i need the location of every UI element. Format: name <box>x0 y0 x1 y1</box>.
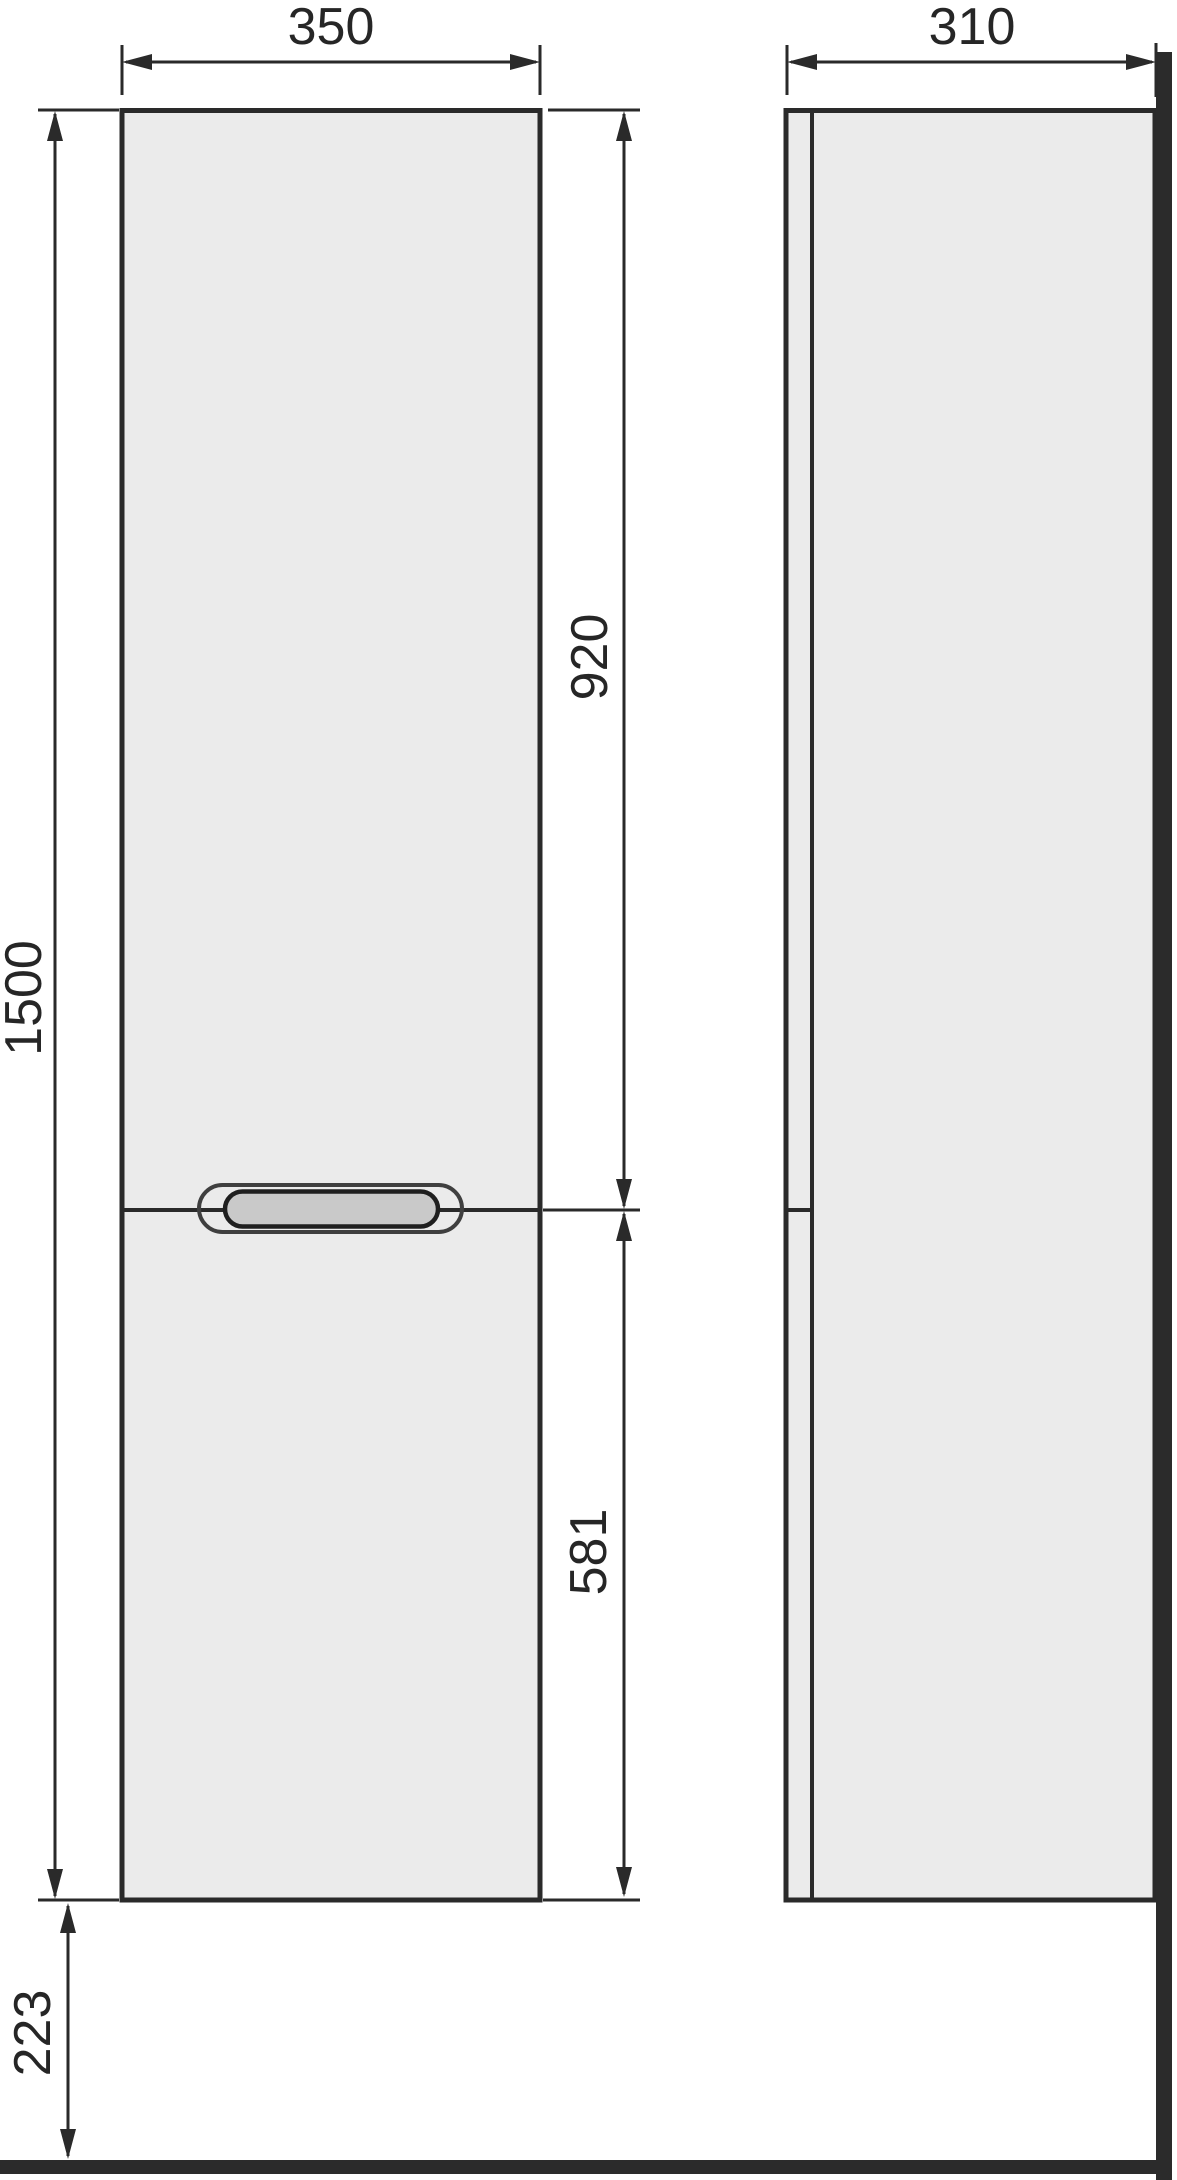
cabinet-dimension-drawing: 350 310 1500 920 581 <box>0 0 1177 2180</box>
wall-section-bar <box>1156 52 1172 2180</box>
dimension-label-lower-door-height: 581 <box>560 1509 618 1596</box>
dimension-label-side-depth: 310 <box>929 0 1016 56</box>
dimension-label-upper-door-height: 920 <box>561 614 619 701</box>
floor-section-bar <box>0 2160 1172 2174</box>
side-view-cabinet-body <box>786 111 1155 1901</box>
front-view-cabinet-body <box>122 111 540 1901</box>
front-view <box>122 111 540 1901</box>
dimension-label-floor-clearance: 223 <box>4 1990 62 2077</box>
handle <box>225 1192 438 1227</box>
dimension-label-overall-height: 1500 <box>0 940 53 1056</box>
side-view <box>786 111 1155 1901</box>
dimension-label-front-width: 350 <box>288 0 375 56</box>
